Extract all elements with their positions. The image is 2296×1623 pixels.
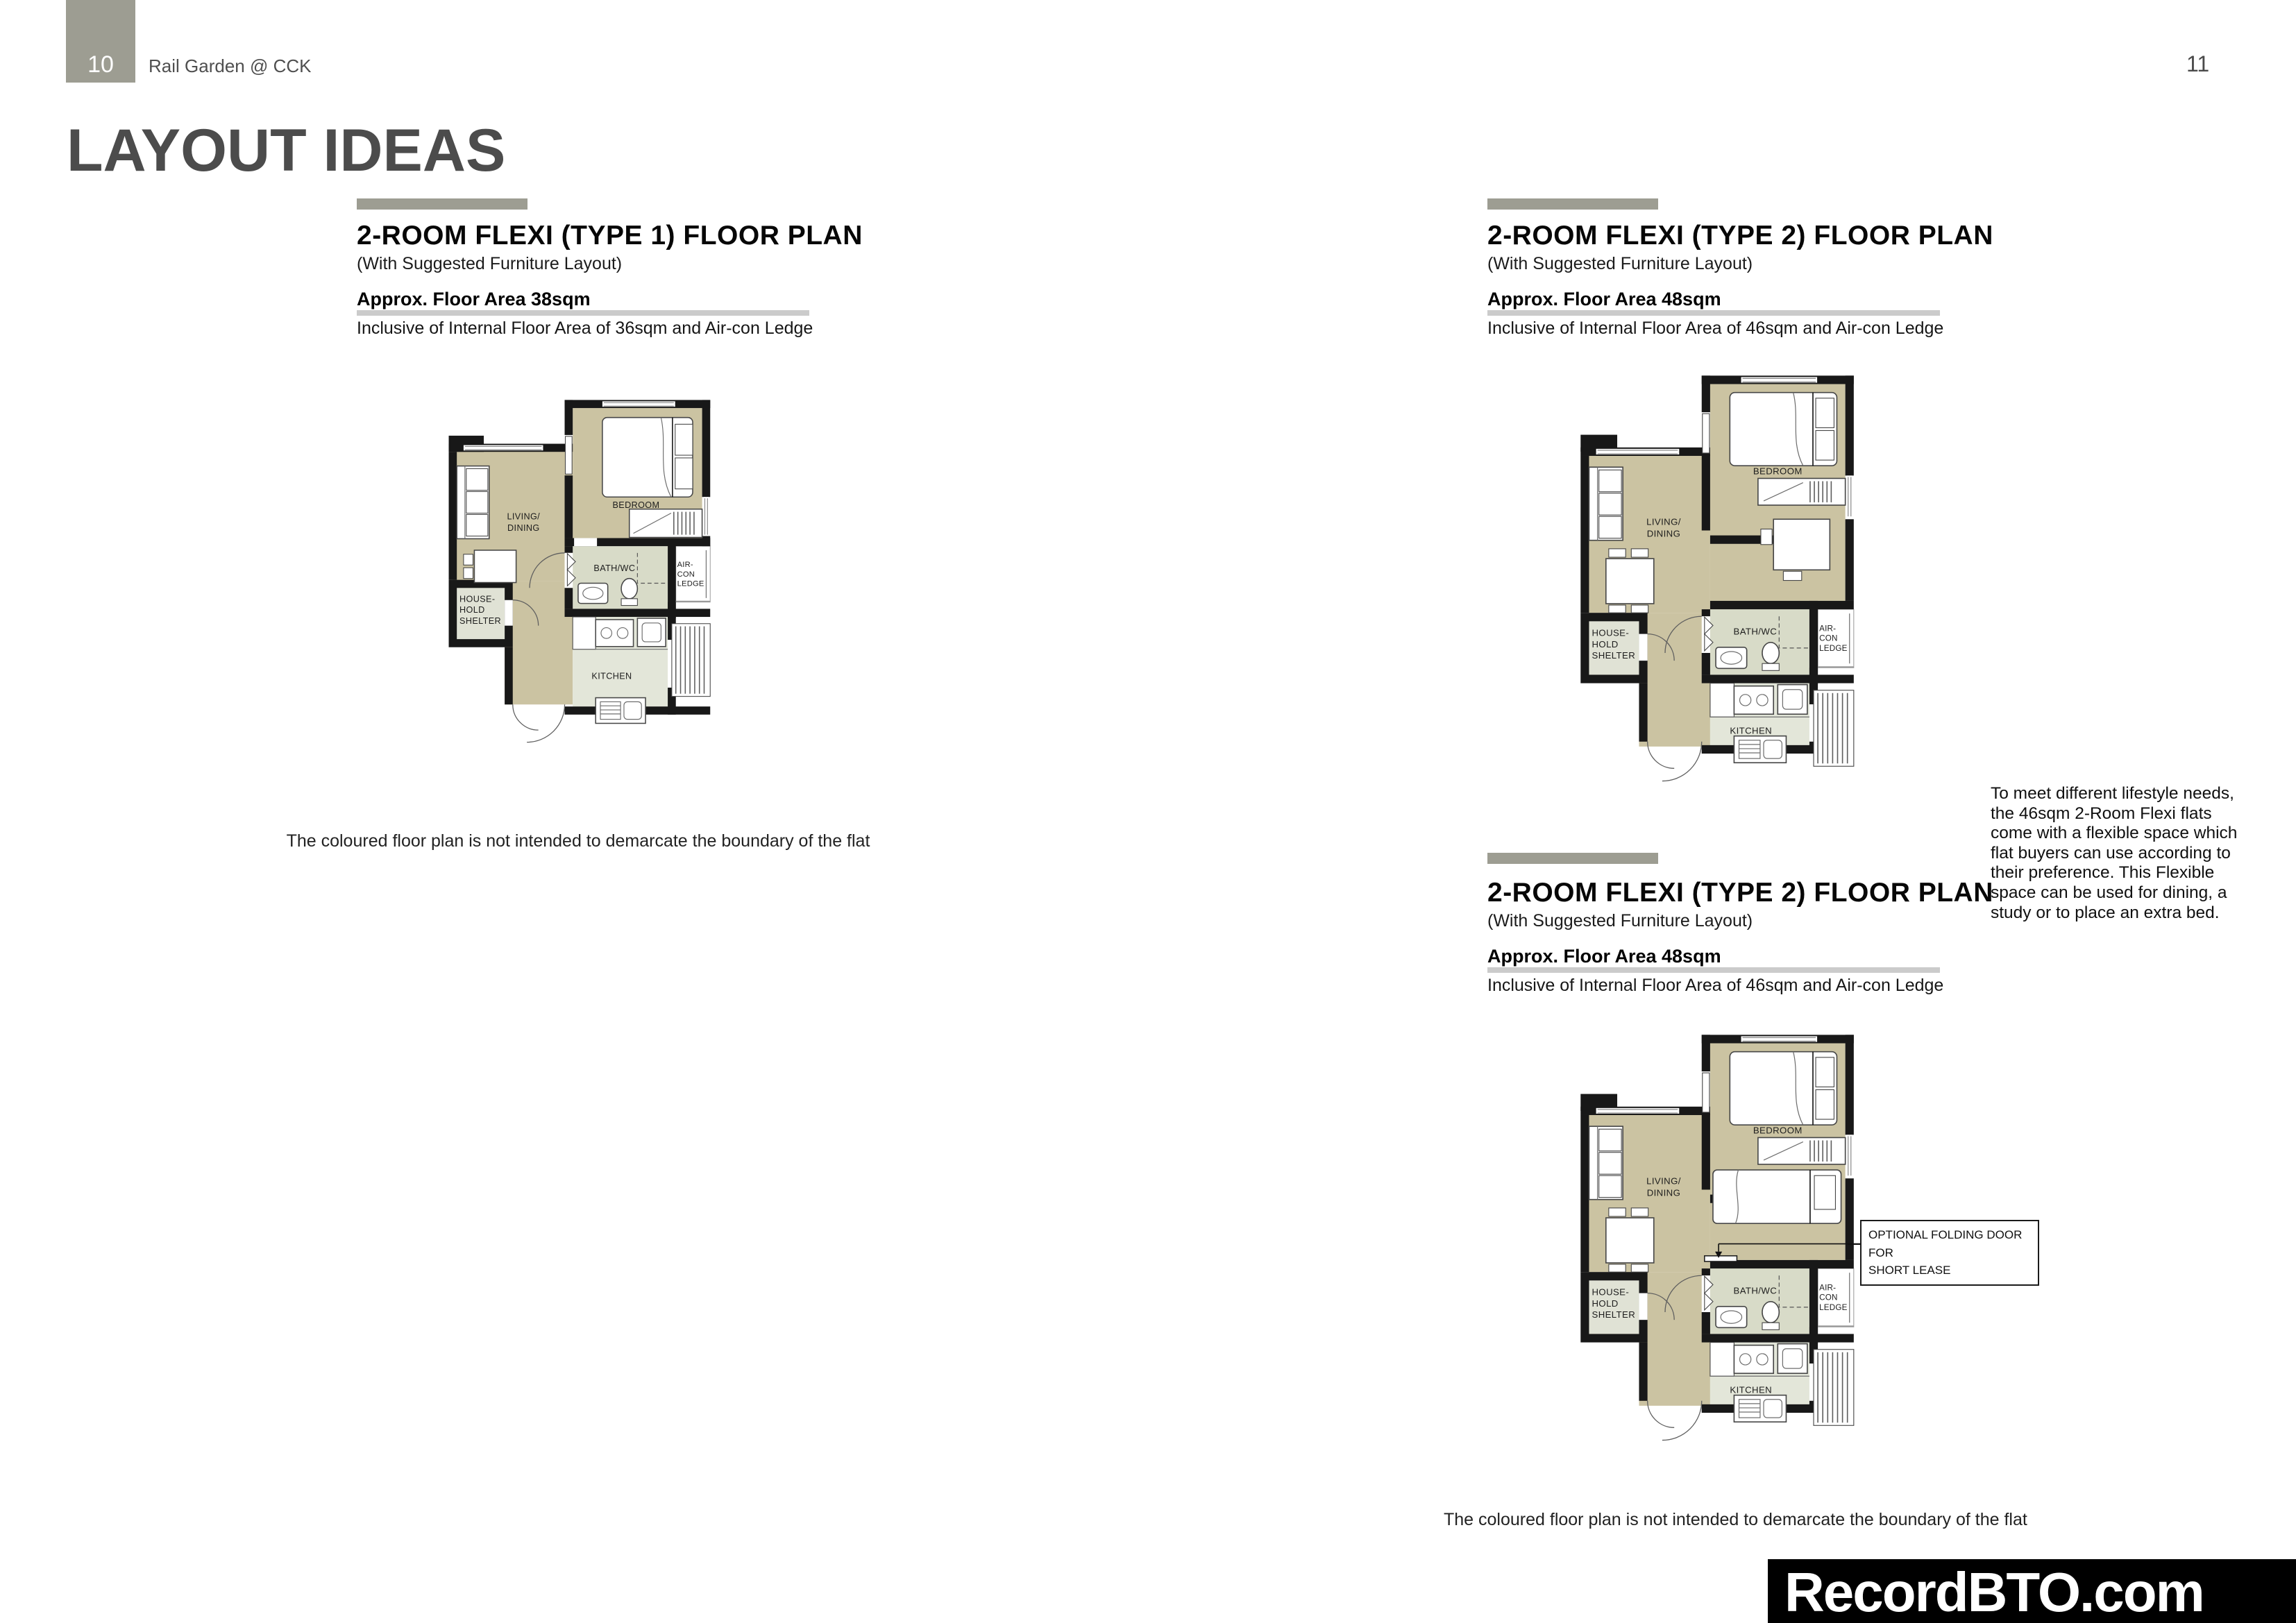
kitchen-label: KITCHEN: [1730, 726, 1772, 736]
bath-label: BATH/WC: [1734, 627, 1778, 637]
dining-table-icon: [1606, 549, 1654, 613]
note-line: come with a flexible space which: [1991, 824, 2237, 844]
kitchen-sink-icon: [1778, 1344, 1807, 1374]
callout-leader-line: [1848, 1243, 1862, 1245]
kitchen-label: KITCHEN: [591, 671, 632, 681]
household-label: SHELTER: [459, 616, 501, 626]
project-name: Rail Garden @ CCK: [149, 56, 311, 77]
household-label: HOUSE-: [1592, 1287, 1630, 1298]
callout-box: OPTIONAL FOLDING DOOR FOR SHORT LEASE: [1860, 1220, 2039, 1286]
section-accent-bar: [1487, 853, 1658, 864]
drying-rack-icon: [1814, 690, 1854, 767]
kitchen-sink-icon: [637, 618, 666, 647]
drying-rack-icon: [1814, 1350, 1854, 1426]
aircon-label: AIR-: [1819, 624, 1836, 634]
floor-area-heading: Approx. Floor Area 48sqm: [1487, 946, 1721, 967]
floor-area-note: Inclusive of Internal Floor Area of 46sq…: [1487, 976, 1943, 996]
household-label: SHELTER: [1592, 1309, 1636, 1320]
page-title: LAYOUT IDEAS: [67, 117, 505, 185]
note-line: space can be used for dining, a: [1991, 883, 2237, 903]
sliding-door-panel: [1703, 414, 1710, 453]
sofa-icon: [1589, 467, 1623, 540]
floor-area-heading: Approx. Floor Area 38sqm: [357, 289, 591, 310]
flexi-single-bed-icon: [1713, 1170, 1841, 1223]
counter-icon: [1710, 1343, 1734, 1377]
toilet-icon: [621, 579, 637, 599]
sofa-icon: [1589, 1126, 1623, 1199]
bed-icon: [1730, 393, 1837, 466]
hallway-area: [1639, 613, 1710, 747]
wardrobe-icon: [1758, 1137, 1846, 1164]
section-subtitle: (With Suggested Furniture Layout): [1487, 911, 1753, 931]
floor-plan-type1: LIVING/ DINING BEDROOM HOUSE- HOLD SHELT…: [435, 386, 718, 757]
boundary-caption-right: The coloured floor plan is not intended …: [1444, 1510, 2023, 1530]
floor-plan-type2-b: LIVING/ DINING BEDROOM HOUSE- HOLD SHELT…: [1567, 1021, 1862, 1457]
note-line: their preference. This Flexible: [1991, 863, 2237, 883]
sliding-door-panel: [1703, 1073, 1710, 1112]
bedroom-label: BEDROOM: [1753, 1125, 1803, 1135]
bed-icon: [1730, 1052, 1837, 1125]
living-label: LIVING/: [507, 511, 541, 521]
floor-area-note: Inclusive of Internal Floor Area of 36sq…: [357, 318, 813, 339]
callout-line: SHORT LEASE: [1868, 1261, 2031, 1280]
section-title: 2-ROOM FLEXI (TYPE 1) FLOOR PLAN: [357, 221, 863, 251]
dining-table-icon: [1606, 1208, 1654, 1272]
section-title: 2-ROOM FLEXI (TYPE 2) FLOOR PLAN: [1487, 878, 1993, 908]
household-label: HOLD: [1592, 639, 1619, 649]
divider-line: [1487, 310, 1940, 316]
note-line: To meet different lifestyle needs,: [1991, 784, 2237, 804]
hallway-area: [1639, 1272, 1710, 1406]
aircon-label: CON: [1819, 1293, 1838, 1302]
living-label: DINING: [1647, 1188, 1681, 1198]
section-accent-bar: [1487, 198, 1658, 210]
bedroom-label: BEDROOM: [613, 500, 660, 510]
divider-line: [1487, 967, 1940, 973]
aircon-label: AIR-: [677, 561, 693, 569]
floor-area-note: Inclusive of Internal Floor Area of 46sq…: [1487, 318, 1943, 339]
aircon-label: CON: [677, 570, 695, 579]
bed-icon: [602, 418, 693, 498]
bath-label: BATH/WC: [1734, 1286, 1778, 1296]
household-label: HOLD: [459, 605, 485, 615]
note-line: flat buyers can use according to: [1991, 844, 2237, 864]
kitchen-sink-icon: [1778, 685, 1807, 715]
floor-area-heading: Approx. Floor Area 48sqm: [1487, 289, 1721, 310]
divider-line: [357, 310, 809, 316]
page-number-right: 11: [2186, 51, 2209, 77]
page-number-left: 10: [66, 51, 135, 78]
boundary-caption-left: The coloured floor plan is not intended …: [283, 831, 873, 851]
callout-line: OPTIONAL FOLDING DOOR FOR: [1868, 1226, 2031, 1261]
household-label: HOUSE-: [1592, 628, 1630, 638]
aircon-label: CON: [1819, 634, 1838, 643]
counter-icon: [573, 617, 596, 649]
household-label: SHELTER: [1592, 650, 1636, 661]
aircon-label: LEDGE: [1819, 644, 1848, 653]
aircon-label: LEDGE: [1819, 1303, 1848, 1312]
floor-plan-type2-a: LIVING/ DINING BEDROOM HOUSE- HOLD SHELT…: [1567, 362, 1862, 798]
bedroom-label: BEDROOM: [1753, 466, 1803, 476]
sliding-door-panel: [565, 436, 572, 474]
wardrobe-icon: [630, 509, 702, 538]
living-label: LIVING/: [1646, 516, 1681, 527]
bath-label: BATH/WC: [593, 563, 635, 573]
watermark-text: RecordBTO.com: [1784, 1559, 2204, 1623]
wardrobe-icon: [1758, 478, 1846, 505]
living-label: DINING: [507, 523, 539, 533]
toilet-icon: [1762, 643, 1779, 663]
section-subtitle: (With Suggested Furniture Layout): [1487, 254, 1753, 274]
section-title: 2-ROOM FLEXI (TYPE 2) FLOOR PLAN: [1487, 221, 1993, 251]
lifestyle-note: To meet different lifestyle needs, the 4…: [1991, 784, 2237, 923]
living-label: DINING: [1647, 529, 1681, 539]
note-line: study or to place an extra bed.: [1991, 903, 2237, 924]
aircon-label: LEDGE: [677, 579, 704, 588]
page-number-box: 10: [66, 0, 135, 83]
aircon-label: AIR-: [1819, 1284, 1836, 1293]
counter-icon: [1710, 683, 1734, 717]
living-label: LIVING/: [1646, 1175, 1681, 1186]
household-label: HOLD: [1592, 1298, 1619, 1309]
drying-rack-icon: [672, 624, 710, 697]
watermark-box: RecordBTO.com: [1768, 1559, 2296, 1623]
section-accent-bar: [357, 198, 527, 210]
section-subtitle: (With Suggested Furniture Layout): [357, 254, 622, 274]
sofa-icon: [457, 466, 489, 539]
hallway-area: [505, 581, 573, 705]
brochure-spread: 10 Rail Garden @ CCK 11 LAYOUT IDEAS 2-R…: [0, 0, 2296, 1623]
household-label: HOUSE-: [459, 595, 495, 604]
toilet-icon: [1762, 1302, 1779, 1323]
note-line: the 46sqm 2-Room Flexi flats: [1991, 804, 2237, 824]
kitchen-label: KITCHEN: [1730, 1385, 1772, 1395]
